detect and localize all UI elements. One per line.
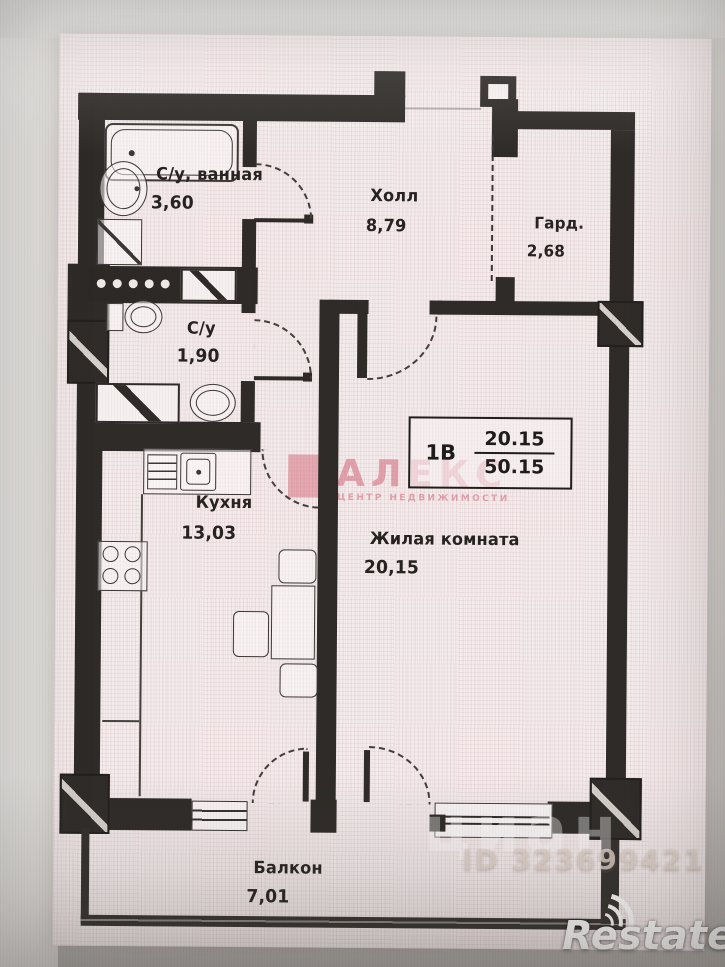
wall-right-main [606, 346, 629, 782]
unit-total-area: 50.15 [470, 456, 558, 479]
radiator-dot [113, 279, 122, 288]
wall-wardrobe-bottom-stub [496, 277, 515, 306]
wall-bathroom-right-upper [243, 119, 257, 167]
agency-tagline-watermark: ЦЕНТР НЕДВИЖИМОСТИ [337, 493, 510, 504]
stove-burner [124, 568, 140, 584]
wall-wc-right-upper [241, 275, 255, 313]
washing-machine [97, 219, 142, 265]
washbasin [99, 161, 147, 216]
livingroom-door-leaf [357, 310, 368, 378]
restate-logo: Restate [556, 897, 725, 967]
room-area-wardrobe: 2,68 [527, 241, 565, 260]
unit-areas: 20.15 50.15 [470, 428, 558, 479]
wall-central-partition [316, 300, 340, 805]
wall-livingroom-top-right [438, 301, 608, 316]
room-label-wc: С/у [187, 319, 216, 339]
fraction-bar [474, 452, 554, 455]
room-area-balcony: 7,01 [246, 886, 289, 907]
floorplan-photo: АЛЕКС ЦЕНТР НЕДВИЖИМОСТИ [0, 0, 725, 967]
pedestal-sink-inner [196, 390, 230, 416]
washbasin-tap [134, 186, 139, 191]
stove-burner [102, 568, 118, 584]
wall-right-upper [610, 130, 635, 304]
radiator-dot [129, 279, 138, 288]
wall-bottom-center [310, 800, 336, 833]
pedestal-sink [190, 384, 236, 422]
wall-bottom-kitchen [103, 798, 191, 831]
radiator-dot [161, 279, 170, 288]
kitchen-sink-tap [196, 470, 201, 475]
livingroom-door-jamb-left [356, 300, 368, 314]
stove-burner [125, 546, 141, 562]
room-label-livingroom: Жилая комната [370, 529, 520, 550]
dining-table [271, 585, 316, 659]
radiator-dot [145, 279, 154, 288]
listing-id-watermark: ID 323699421 [462, 843, 705, 876]
towel-radiator [89, 268, 179, 302]
vent-shaft-wc [96, 383, 180, 424]
room-label-wardrobe: Гард. [534, 213, 584, 232]
room-label-hall: Холл [370, 186, 418, 206]
room-area-wc: 1,90 [177, 346, 220, 367]
toilet-bowl [124, 300, 162, 333]
wall-top-pilaster [374, 71, 405, 97]
balcony-rail-left [81, 828, 90, 924]
unit-living-area: 20.15 [470, 428, 558, 451]
room-area-bathroom: 3,60 [151, 192, 194, 213]
unit-number: 1В [425, 440, 456, 464]
restate-logo-text: Restate [562, 913, 725, 959]
toilet-bowl-inner [130, 306, 156, 327]
unit-info-box: 1В 20.15 50.15 [408, 416, 573, 489]
room-area-livingroom: 20,15 [364, 557, 419, 578]
wall-wardrobe-top [513, 111, 635, 130]
column-right-upper [597, 301, 643, 347]
kitchen-window [191, 801, 247, 831]
column-left-upper [67, 320, 110, 384]
room-area-hall: 8,79 [366, 216, 407, 236]
radiator-dot [97, 279, 106, 288]
kitchen-drainer [147, 454, 177, 489]
chair [279, 663, 317, 697]
wall-wc-bottom [76, 421, 260, 452]
vent-shaft-corridor [181, 269, 237, 302]
kitchen-sink [180, 453, 216, 491]
room-label-bathroom: С/у, ванная [156, 164, 263, 185]
column-left-lower [59, 774, 109, 834]
room-label-balcony: Балкон [253, 858, 323, 879]
wall-wc-right-lower [241, 381, 255, 422]
stove-burner [103, 546, 119, 562]
toilet-tank [106, 303, 123, 331]
chair [278, 549, 316, 583]
stove [97, 541, 147, 591]
bathtub-drain [129, 150, 135, 156]
livingroom-door-jamb-right [429, 301, 441, 315]
chair [233, 611, 269, 657]
room-label-kitchen: Кухня [196, 493, 253, 513]
room-area-kitchen: 13,03 [181, 523, 236, 544]
counter-shelf-line [102, 720, 139, 722]
wall-top [78, 93, 405, 123]
